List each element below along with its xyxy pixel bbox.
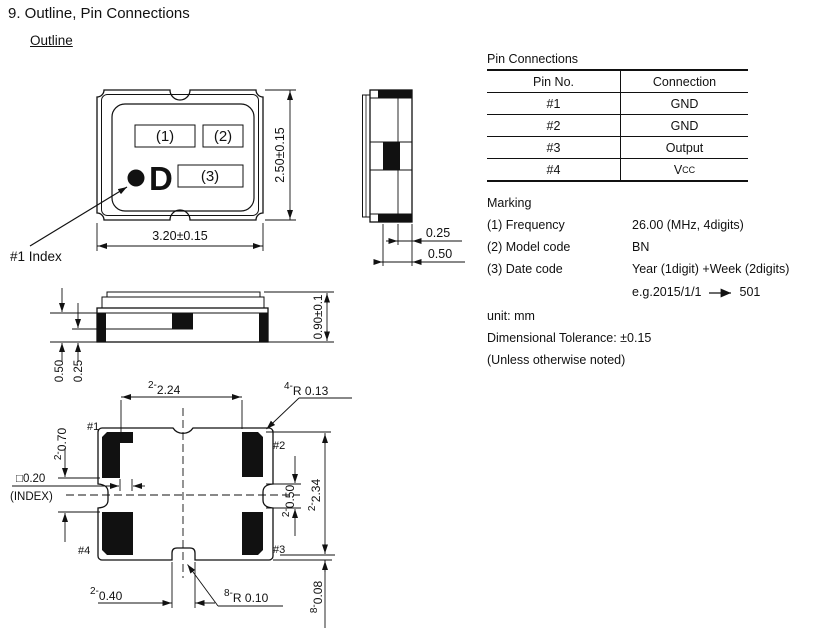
front-dim-b-label: 0.25: [73, 360, 85, 382]
dim-pitch-x-label: 2-2.24: [148, 380, 181, 397]
arrow-right-icon: [708, 288, 734, 298]
dim-value: R 0.13: [293, 384, 329, 398]
example-text: e.g.2015/1/1: [632, 285, 702, 300]
note-condition: (Unless otherwise noted): [487, 353, 625, 368]
dim-prefix: 2-: [281, 508, 292, 517]
date-code-example: e.g.2015/1/1 501: [632, 285, 760, 300]
pin-no: #1: [487, 93, 621, 114]
vcc-main: V: [674, 163, 682, 177]
table-row: #1 GND: [487, 93, 748, 115]
marking-3-text: (3): [201, 168, 219, 185]
table-row: #3 Output: [487, 137, 748, 159]
pin-connection: GND: [621, 115, 748, 136]
col-header-pin: Pin No.: [487, 71, 621, 92]
dim-pitch-y-label: 2-2.34: [307, 479, 323, 512]
pad-1-label: #1: [87, 421, 99, 433]
pad-2: [242, 432, 263, 477]
pad-3: [242, 512, 263, 555]
index-arrow: [30, 187, 127, 246]
marking-item-label: (2) Model code: [487, 240, 570, 255]
dim-value: 0.08: [311, 581, 325, 605]
front-dim-a-label: 0.50: [54, 360, 66, 382]
note-tolerance: Dimensional Tolerance: ±0.15: [487, 331, 651, 346]
front-dim-height-label: 0.90±0.1: [313, 295, 325, 340]
pin-no: #4: [487, 159, 621, 180]
dim-prefix: 2-: [90, 586, 99, 597]
dim-height-label: 2.50±0.15: [273, 127, 287, 183]
dim-index-note: (INDEX): [10, 491, 53, 503]
pin-no: #2: [487, 115, 621, 136]
pin-connections-table: Pin No. Connection #1 GND #2 GND #3 Outp…: [487, 69, 748, 182]
dim-corner-r-label: 4-R 0.13: [284, 381, 329, 398]
marking-item-value: BN: [632, 240, 649, 255]
lid-edge: [102, 95, 259, 216]
dim-width-label: 3.20±0.15: [152, 229, 208, 243]
cavity-outline: [112, 104, 254, 211]
dim-prefix: 2-: [53, 451, 64, 460]
outline-drawing: (1) (2) (3) D #1 Index 3.20±0.15 2.50±0.…: [0, 0, 480, 636]
dim-prefix: 8-: [224, 588, 233, 599]
pad-2-label: #2: [273, 440, 285, 452]
table-header-row: Pin No. Connection: [487, 71, 748, 93]
dim-value: 2.34: [309, 479, 323, 503]
side-dim-terminal-label: 0.50: [428, 247, 452, 261]
side-dim-pad-label: 0.25: [426, 226, 450, 240]
vcc-subscript: CC: [682, 165, 695, 175]
pin1-index-label: #1 Index: [10, 249, 62, 264]
table-row: #4 VCC: [487, 159, 748, 180]
front-view: [50, 288, 334, 362]
pad-4-label: #4: [78, 545, 90, 557]
marking-1-text: (1): [156, 128, 174, 145]
dim-pad-gap-label: 2-0.70: [53, 428, 69, 461]
marking-item-value: Year (1digit) +Week (2digits): [632, 262, 789, 277]
marking-2-text: (2): [214, 128, 232, 145]
marking-item-label: (3) Date code: [487, 262, 563, 277]
pin-connection-vcc: VCC: [621, 159, 748, 180]
marking-item-value: 26.00 (MHz, 4digits): [632, 218, 744, 233]
pad-1: [102, 432, 133, 478]
note-unit: unit: mm: [487, 309, 535, 324]
dim-edge-gap-label: 8-0.08: [309, 581, 325, 614]
dim-value: 0.40: [99, 589, 123, 603]
pad-3-label: #3: [273, 544, 285, 556]
example-result: 501: [740, 285, 761, 300]
marking-item-label: (1) Frequency: [487, 218, 565, 233]
pin-no: #3: [487, 137, 621, 158]
marking-letter: D: [149, 160, 173, 197]
dim-value: 2.24: [157, 383, 181, 397]
pin-connections-title: Pin Connections: [487, 52, 578, 67]
dim-notch-r-label: 8-R 0.10: [224, 588, 269, 605]
pin-connection: GND: [621, 93, 748, 114]
col-header-connection: Connection: [621, 71, 748, 92]
table-row: #2 GND: [487, 115, 748, 137]
package-outline: [97, 90, 263, 220]
pin1-index-dot: [128, 170, 145, 187]
dim-value: 0.70: [55, 428, 69, 452]
dim-prefix: 8-: [309, 604, 320, 613]
dim-value: R 0.10: [233, 591, 269, 605]
dim-notch-w-label: 2-0.40: [90, 586, 123, 603]
dim-index-label: □0.20: [16, 473, 45, 485]
marking-title: Marking: [487, 196, 531, 211]
pin-connection: Output: [621, 137, 748, 158]
dim-prefix: 2-: [307, 502, 318, 511]
dim-prefix: 2-: [148, 380, 157, 391]
pad-4: [102, 512, 133, 555]
dim-prefix: 4-: [284, 381, 293, 392]
dim-value: 0.50: [283, 485, 297, 509]
